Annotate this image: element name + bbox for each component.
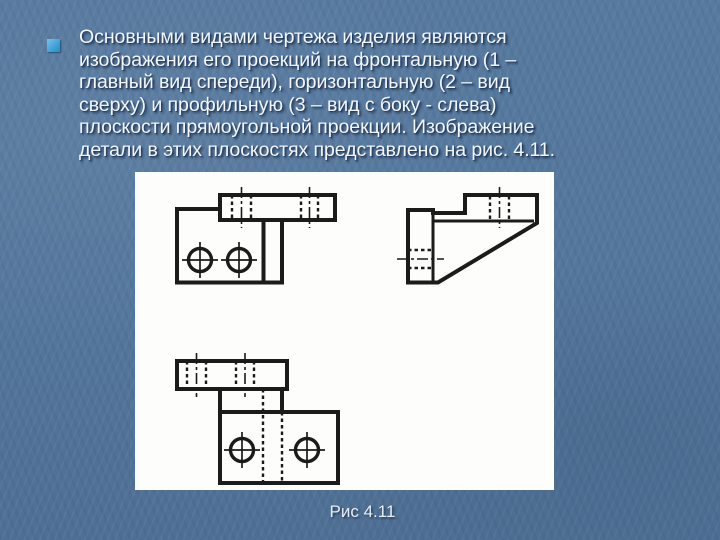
text-line: изображения его проекций на фронтальную … (79, 49, 704, 72)
text-line: детали в этих плоскостях представлено на… (79, 139, 704, 162)
text-line: Основными видами чертежа изделия являютс… (79, 26, 704, 49)
text-line: сверху) и профильную (3 – вид с боку - с… (79, 94, 704, 117)
text-line: главный вид спереди), горизонтальную (2 … (79, 71, 704, 94)
side-view-drawing (397, 187, 537, 283)
front-view-drawing (177, 187, 335, 283)
technical-drawing (135, 172, 554, 490)
bullet-square-icon (47, 39, 60, 52)
top-flange-outline (177, 361, 287, 389)
text-line: плоскости прямоугольной проекции. Изобра… (79, 116, 704, 139)
top-view-drawing (177, 353, 338, 483)
slide: Основными видами чертежа изделия являютс… (0, 0, 720, 540)
top-body-outline (220, 389, 338, 483)
side-outline (408, 195, 537, 283)
figure-caption: Рис 4.11 (153, 502, 572, 522)
figure-panel (135, 172, 554, 490)
slide-body-text: Основными видами чертежа изделия являютс… (79, 26, 704, 162)
